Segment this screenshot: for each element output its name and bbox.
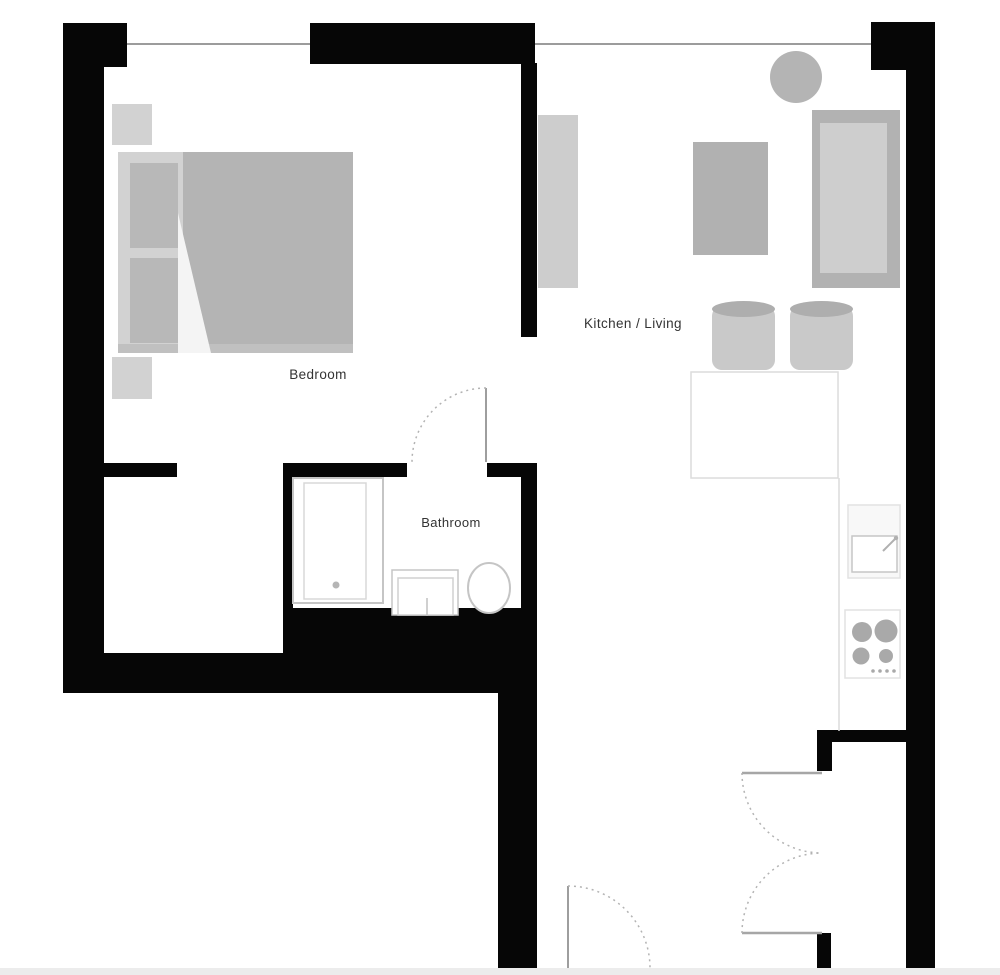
stove-burner-icon [875,620,898,643]
stove-burner-icon [853,648,870,665]
bathroom-label: Bathroom [421,515,481,530]
kitchen-counter-icon [691,372,838,478]
stove-burner-icon [879,649,893,663]
stove-knob-dot [885,669,889,673]
floor-plan-drawing: Bedroom Kitchen / Living Bathroom [0,0,1000,975]
stove-icon [845,610,900,678]
stool-right-icon [790,301,853,370]
nightstand-top-icon [112,104,152,145]
sideboard-icon [538,115,578,288]
shower-drain-dot [333,582,340,589]
plant-icon [770,51,822,103]
wall-closet-stub [98,463,177,477]
floor-plan: Bedroom Kitchen / Living Bathroom [0,0,1000,975]
toilet-icon [468,563,510,613]
vanity-basin [398,578,453,615]
wall-left [63,23,104,655]
faucet-dot [894,536,898,540]
wall-bathroom-top-left [283,463,407,477]
sink-basin-icon [852,536,897,572]
bed-mattress-icon [183,152,353,353]
wall-entry-bottom-stub [817,933,831,968]
sofa-cushion-icon [820,123,887,273]
wall-top-middle [310,23,535,64]
bedroom-label: Bedroom [289,367,347,382]
pillow-bottom-icon [130,258,178,343]
stove-knob-dot [892,669,896,673]
wall-bottom-middle-vertical [498,653,537,968]
stool-top [790,301,853,317]
kitchen-living-label: Kitchen / Living [584,316,682,331]
stool-top [712,301,775,317]
wall-entry-top-stub [817,730,832,771]
wall-middle-vertical [521,63,537,337]
wall-right [906,70,935,968]
wall-bottom-left-band [63,653,507,693]
stool-left-icon [712,301,775,370]
stove-body [845,610,900,678]
wall-bathroom-left [283,477,293,612]
bottom-edge-strip [0,968,1000,975]
wall-bathroom-right [521,463,537,613]
nightstand-bottom-icon [112,357,152,399]
wall-top-right-block [871,22,935,70]
table-icon [693,142,768,255]
stove-knob-dot [871,669,875,673]
stove-knob-dot [878,669,882,673]
bed-foot-strip [118,344,353,353]
stove-burner-icon [852,622,872,642]
pillow-top-icon [130,163,178,248]
